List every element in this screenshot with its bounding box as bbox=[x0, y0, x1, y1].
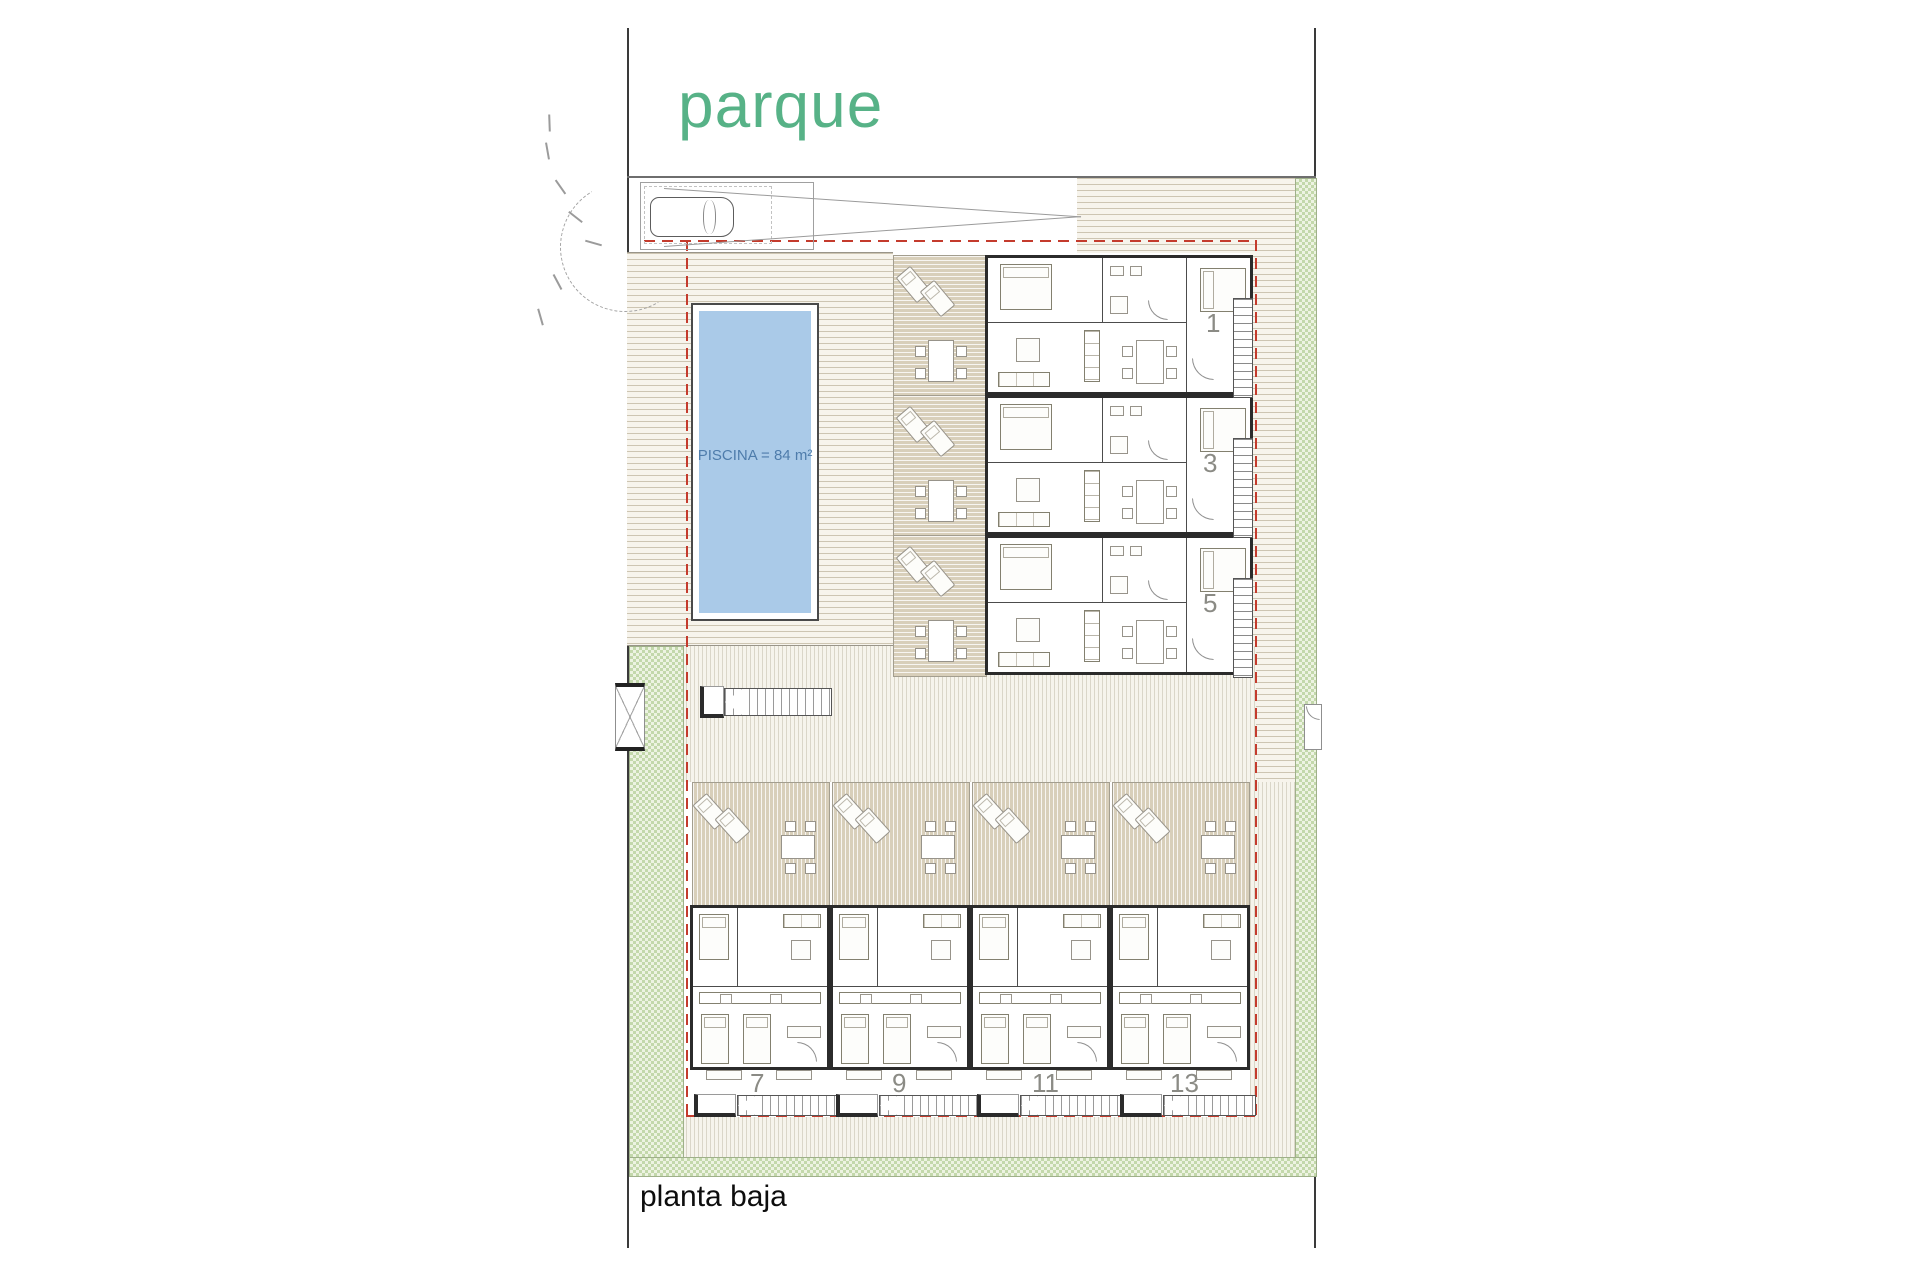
porch-step bbox=[916, 1070, 952, 1080]
terrace-unit-3 bbox=[893, 395, 987, 537]
dining-table-icon bbox=[1136, 340, 1164, 384]
guide-dash bbox=[555, 179, 566, 194]
partition bbox=[988, 322, 1186, 323]
sofa-icon bbox=[1203, 914, 1241, 928]
shelf-icon bbox=[1084, 610, 1100, 662]
bed-icon bbox=[1000, 264, 1052, 310]
partition bbox=[988, 462, 1186, 463]
chair-icon bbox=[956, 368, 967, 379]
porch-step bbox=[1056, 1070, 1092, 1080]
sofa-icon bbox=[783, 914, 821, 928]
partition bbox=[1186, 398, 1187, 532]
door-arc bbox=[1148, 580, 1168, 600]
lower-unit-11 bbox=[970, 782, 1110, 1070]
stair-landing-mid bbox=[700, 686, 724, 718]
chair-icon bbox=[1205, 821, 1216, 832]
unit-9-interior bbox=[830, 905, 970, 1070]
shelf-icon bbox=[1084, 470, 1100, 522]
shower-icon bbox=[1110, 436, 1128, 454]
chair-icon bbox=[915, 508, 926, 519]
partition bbox=[877, 908, 878, 986]
porch-step bbox=[1126, 1070, 1162, 1080]
floor-plan-title: planta baja bbox=[640, 1180, 787, 1214]
stair-unit-7-icon bbox=[737, 1095, 839, 1116]
partition bbox=[1157, 908, 1158, 986]
kitchen-counter-icon bbox=[979, 992, 1101, 1004]
chair-icon bbox=[915, 626, 926, 637]
partition bbox=[1186, 258, 1187, 392]
terrace-unit-13 bbox=[1112, 782, 1250, 907]
stair-arrow bbox=[725, 689, 742, 715]
stair-unit-9-icon bbox=[879, 1095, 981, 1116]
chair-icon bbox=[1065, 821, 1076, 832]
chair-icon bbox=[805, 821, 816, 832]
dining-table-icon bbox=[1061, 835, 1095, 859]
stove-icon bbox=[1140, 994, 1152, 1004]
site-plan-sheet: parque PISCINA = 84 m² bbox=[0, 0, 1920, 1280]
door-arc bbox=[1148, 300, 1168, 320]
sink-icon bbox=[770, 994, 782, 1004]
green-verge-right bbox=[1295, 178, 1317, 1159]
unit-number-5: 5 bbox=[1203, 588, 1217, 619]
chair-icon bbox=[945, 863, 956, 874]
unit-11-interior bbox=[970, 905, 1110, 1070]
door-arc bbox=[937, 1042, 957, 1062]
unit-number-3: 3 bbox=[1203, 448, 1217, 479]
toilet-icon bbox=[1110, 406, 1124, 416]
chair-icon bbox=[785, 821, 796, 832]
unit-7-interior bbox=[690, 905, 830, 1070]
bed-icon bbox=[981, 1014, 1009, 1064]
door-arc bbox=[1192, 498, 1214, 520]
stair-landing bbox=[836, 1094, 878, 1117]
door-arc bbox=[797, 1042, 817, 1062]
coffee-table-icon bbox=[1016, 478, 1040, 502]
bed-icon bbox=[699, 914, 729, 960]
pool-area-label: PISCINA = 84 m² bbox=[693, 447, 817, 464]
gate-right bbox=[1304, 704, 1322, 750]
chair-icon bbox=[956, 648, 967, 659]
terrace-unit-5 bbox=[893, 535, 987, 677]
kitchen-counter-icon bbox=[699, 992, 821, 1004]
partition bbox=[1102, 258, 1103, 322]
armchair-icon bbox=[1211, 940, 1231, 960]
door-arc bbox=[1192, 638, 1214, 660]
upper-block bbox=[893, 255, 1253, 675]
porch-step bbox=[846, 1070, 882, 1080]
wardrobe-icon bbox=[1067, 1026, 1101, 1038]
stair-landing bbox=[694, 1094, 736, 1117]
stove-icon bbox=[1000, 994, 1012, 1004]
partition bbox=[1102, 538, 1103, 602]
armchair-icon bbox=[791, 940, 811, 960]
upper-unit-row-3 bbox=[893, 535, 1253, 675]
chair-icon bbox=[1122, 648, 1133, 659]
stair-unit-11-icon bbox=[1020, 1095, 1122, 1116]
chair-icon bbox=[1166, 368, 1177, 379]
partition bbox=[693, 986, 827, 987]
chair-icon bbox=[915, 486, 926, 497]
chair-icon bbox=[1122, 346, 1133, 357]
gate-left bbox=[615, 683, 645, 751]
bed-icon bbox=[743, 1014, 771, 1064]
toilet-icon bbox=[1110, 266, 1124, 276]
coffee-table-icon bbox=[1016, 338, 1040, 362]
dining-table-icon bbox=[928, 340, 954, 382]
partition bbox=[833, 986, 967, 987]
chair-icon bbox=[956, 346, 967, 357]
shelf-icon bbox=[1084, 330, 1100, 382]
upper-unit-row-2 bbox=[893, 395, 1253, 535]
guide-dash bbox=[553, 274, 563, 290]
porch-step bbox=[986, 1070, 1022, 1080]
door-arc bbox=[1148, 440, 1168, 460]
wardrobe-icon bbox=[927, 1026, 961, 1038]
unit-13-interior bbox=[1110, 905, 1250, 1070]
chair-icon bbox=[1122, 626, 1133, 637]
sofa-icon bbox=[923, 914, 961, 928]
chair-icon bbox=[1225, 821, 1236, 832]
dining-table-icon bbox=[928, 480, 954, 522]
dining-table-icon bbox=[928, 620, 954, 662]
bottom-walkway-paving bbox=[682, 1117, 1295, 1157]
door-arc bbox=[1077, 1042, 1097, 1062]
bed-icon bbox=[1023, 1014, 1051, 1064]
dining-table-icon bbox=[1136, 620, 1164, 664]
chair-icon bbox=[945, 821, 956, 832]
boundary-dashed-right bbox=[1255, 240, 1257, 1117]
chair-icon bbox=[956, 508, 967, 519]
bed-icon bbox=[1000, 544, 1052, 590]
dining-table-icon bbox=[921, 835, 955, 859]
bed-icon bbox=[1163, 1014, 1191, 1064]
lower-unit-13 bbox=[1110, 782, 1250, 1070]
stair-unit-5-icon bbox=[1233, 578, 1253, 678]
chair-icon bbox=[1166, 508, 1177, 519]
car-windshield bbox=[703, 200, 716, 234]
park-label: parque bbox=[678, 68, 883, 142]
sink-icon bbox=[1050, 994, 1062, 1004]
pool: PISCINA = 84 m² bbox=[691, 303, 819, 621]
green-verge-bottom bbox=[629, 1157, 1317, 1177]
lower-block bbox=[690, 782, 1250, 1070]
terrace-unit-11 bbox=[972, 782, 1110, 907]
bed-icon bbox=[979, 914, 1009, 960]
stair-arrow bbox=[880, 1096, 897, 1115]
chair-icon bbox=[1166, 626, 1177, 637]
armchair-icon bbox=[1071, 940, 1091, 960]
upper-unit-row-1 bbox=[893, 255, 1253, 395]
chair-icon bbox=[805, 863, 816, 874]
stair-landing bbox=[1120, 1094, 1162, 1117]
toilet-icon bbox=[1110, 546, 1124, 556]
shower-icon bbox=[1110, 576, 1128, 594]
partition bbox=[988, 602, 1186, 603]
dining-table-icon bbox=[1136, 480, 1164, 524]
terrace-unit-7 bbox=[692, 782, 830, 907]
chair-icon bbox=[925, 821, 936, 832]
bed-icon bbox=[1121, 1014, 1149, 1064]
lower-unit-7 bbox=[690, 782, 830, 1070]
chair-icon bbox=[1085, 863, 1096, 874]
terrace-unit-9 bbox=[832, 782, 970, 907]
chair-icon bbox=[1122, 486, 1133, 497]
porch-step bbox=[776, 1070, 812, 1080]
terrace-unit-1 bbox=[893, 255, 987, 397]
bed-icon bbox=[1119, 914, 1149, 960]
lower-unit-9 bbox=[830, 782, 970, 1070]
coffee-table-icon bbox=[1016, 618, 1040, 642]
porch-step bbox=[1196, 1070, 1232, 1080]
sofa-icon bbox=[1063, 914, 1101, 928]
porch-step bbox=[706, 1070, 742, 1080]
guide-dash bbox=[545, 142, 550, 159]
stair-arrow bbox=[1164, 1096, 1181, 1115]
partition bbox=[1113, 986, 1247, 987]
sink-icon bbox=[1130, 546, 1142, 556]
kitchen-counter-icon bbox=[839, 992, 961, 1004]
partition bbox=[1017, 908, 1018, 986]
guide-dash bbox=[548, 114, 551, 131]
stove-icon bbox=[860, 994, 872, 1004]
chair-icon bbox=[925, 863, 936, 874]
chair-icon bbox=[915, 648, 926, 659]
stair-landing bbox=[977, 1094, 1019, 1117]
partition bbox=[1102, 398, 1103, 462]
bed-icon bbox=[883, 1014, 911, 1064]
door-arc bbox=[1217, 1042, 1237, 1062]
sink-icon bbox=[910, 994, 922, 1004]
door-arc bbox=[1192, 358, 1214, 380]
kitchen-counter-icon bbox=[1119, 992, 1241, 1004]
stair-unit-1-icon bbox=[1233, 298, 1253, 398]
partition bbox=[737, 908, 738, 986]
chair-icon bbox=[956, 486, 967, 497]
sink-icon bbox=[1190, 994, 1202, 1004]
sofa-icon bbox=[998, 372, 1050, 387]
chair-icon bbox=[915, 346, 926, 357]
unit-number-1: 1 bbox=[1206, 308, 1220, 339]
bed-icon bbox=[701, 1014, 729, 1064]
chair-icon bbox=[1122, 508, 1133, 519]
chair-icon bbox=[1166, 346, 1177, 357]
shower-icon bbox=[1110, 296, 1128, 314]
bed-icon bbox=[839, 914, 869, 960]
sink-icon bbox=[1130, 266, 1142, 276]
dining-table-icon bbox=[781, 835, 815, 859]
chair-icon bbox=[1122, 368, 1133, 379]
wardrobe-icon bbox=[787, 1026, 821, 1038]
stair-unit-13-icon bbox=[1163, 1095, 1256, 1116]
chair-icon bbox=[1166, 648, 1177, 659]
bed-icon bbox=[841, 1014, 869, 1064]
boundary-dashed-left bbox=[686, 240, 688, 1117]
stair-unit-3-icon bbox=[1233, 438, 1253, 538]
chair-icon bbox=[1166, 486, 1177, 497]
sofa-icon bbox=[998, 652, 1050, 667]
stair-arrow bbox=[738, 1096, 755, 1115]
gate-right-swing-arc bbox=[1306, 706, 1320, 720]
partition bbox=[973, 986, 1107, 987]
sofa-icon bbox=[998, 512, 1050, 527]
dining-table-icon bbox=[1201, 835, 1235, 859]
guide-dash bbox=[537, 309, 544, 326]
sink-icon bbox=[1130, 406, 1142, 416]
stair-mid-icon bbox=[724, 688, 832, 716]
bed-icon bbox=[1000, 404, 1052, 450]
armchair-icon bbox=[931, 940, 951, 960]
chair-icon bbox=[1225, 863, 1236, 874]
partition bbox=[1186, 538, 1187, 672]
chair-icon bbox=[785, 863, 796, 874]
wardrobe-icon bbox=[1207, 1026, 1241, 1038]
stove-icon bbox=[720, 994, 732, 1004]
stair-arrow bbox=[1021, 1096, 1038, 1115]
chair-icon bbox=[915, 368, 926, 379]
chair-icon bbox=[1085, 821, 1096, 832]
chair-icon bbox=[1205, 863, 1216, 874]
chair-icon bbox=[1065, 863, 1076, 874]
chair-icon bbox=[956, 626, 967, 637]
